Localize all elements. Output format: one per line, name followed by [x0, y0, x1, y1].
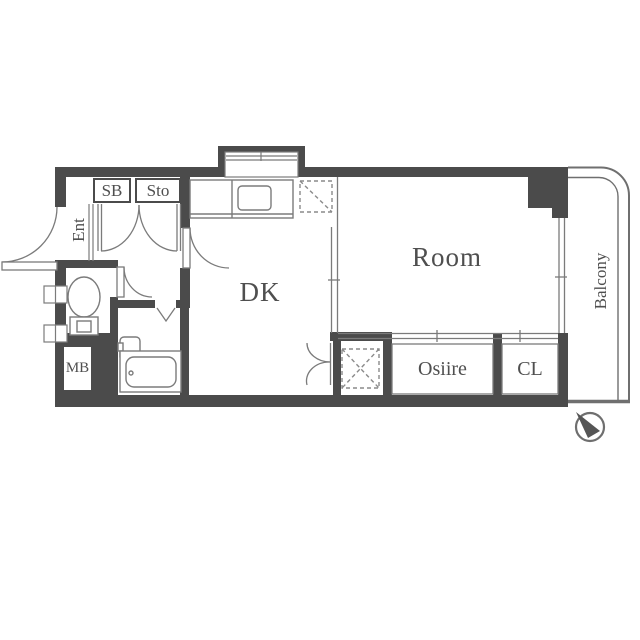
label-box-mb: MB	[62, 345, 93, 392]
entrance-step-line	[89, 204, 93, 261]
bay-window	[218, 146, 305, 177]
floor-plan-canvas: SB Sto Ent MB DK Room Osiire CL Balcony	[0, 0, 640, 640]
bathtub-icon	[120, 351, 181, 392]
mb-label: MB	[66, 360, 89, 377]
toilet-door	[117, 267, 152, 297]
sb-label: SB	[102, 181, 123, 201]
compass-icon	[576, 412, 604, 441]
kitchen-counter	[190, 180, 293, 218]
toilet-icon	[68, 277, 100, 335]
osiire-label: Osiire	[392, 357, 493, 381]
closet-double-doors	[98, 204, 181, 251]
floor-plan-drawing	[0, 0, 640, 640]
washer-doors	[306, 343, 330, 385]
entrance-label: Ent	[67, 200, 89, 260]
cl-label: CL	[502, 357, 558, 381]
dk-door	[183, 228, 229, 268]
sliding-door-dk-room	[328, 177, 340, 333]
label-box-sb: SB	[93, 178, 131, 203]
dk-label: DK	[220, 278, 300, 306]
entrance-door	[2, 207, 57, 270]
room-label: Room	[387, 243, 507, 271]
sto-label: Sto	[147, 181, 170, 201]
washer-space	[342, 349, 379, 388]
balcony-label: Balcony	[588, 231, 612, 331]
window-room-east	[555, 218, 567, 333]
bathroom-folding-door	[157, 308, 175, 321]
fridge-space	[300, 181, 332, 212]
label-box-sto: Sto	[135, 178, 181, 203]
